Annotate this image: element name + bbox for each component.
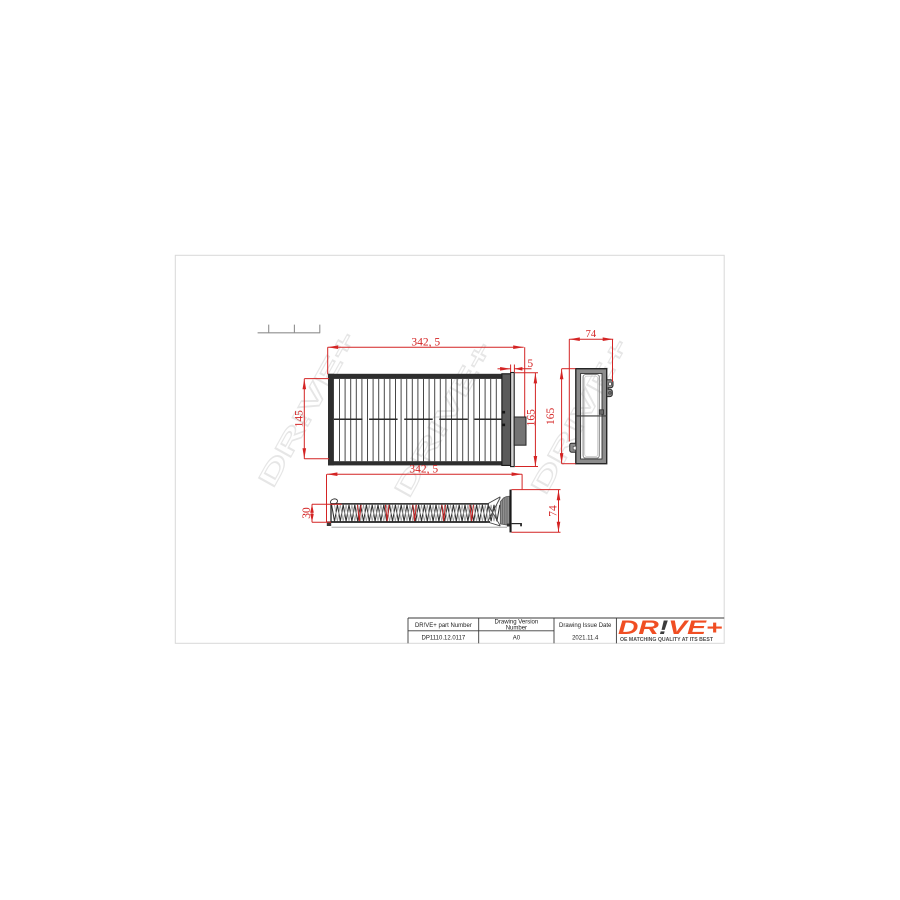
svg-text:A0: A0 xyxy=(513,636,521,642)
svg-text:145: 145 xyxy=(294,410,306,428)
svg-text:DR!VE+: DR!VE+ xyxy=(618,617,722,639)
svg-text:30: 30 xyxy=(301,507,313,519)
svg-text:74: 74 xyxy=(586,329,597,340)
svg-text:DR!VE+ part Number: DR!VE+ part Number xyxy=(415,623,472,629)
svg-text:Number: Number xyxy=(506,626,527,632)
svg-text:2021.11.4: 2021.11.4 xyxy=(572,636,599,642)
svg-text:342, 5: 342, 5 xyxy=(411,336,440,348)
svg-text:74: 74 xyxy=(547,505,559,517)
svg-text:165: 165 xyxy=(545,408,557,426)
svg-text:342, 5: 342, 5 xyxy=(409,463,438,475)
svg-text:165: 165 xyxy=(525,409,537,427)
svg-text:DP1110.12.0117: DP1110.12.0117 xyxy=(422,636,466,642)
svg-text:Drawing Issue Date: Drawing Issue Date xyxy=(559,623,612,629)
svg-text:OE MATCHING QUALITY AT ITS BES: OE MATCHING QUALITY AT ITS BEST xyxy=(620,637,714,643)
svg-text:5: 5 xyxy=(527,358,533,370)
